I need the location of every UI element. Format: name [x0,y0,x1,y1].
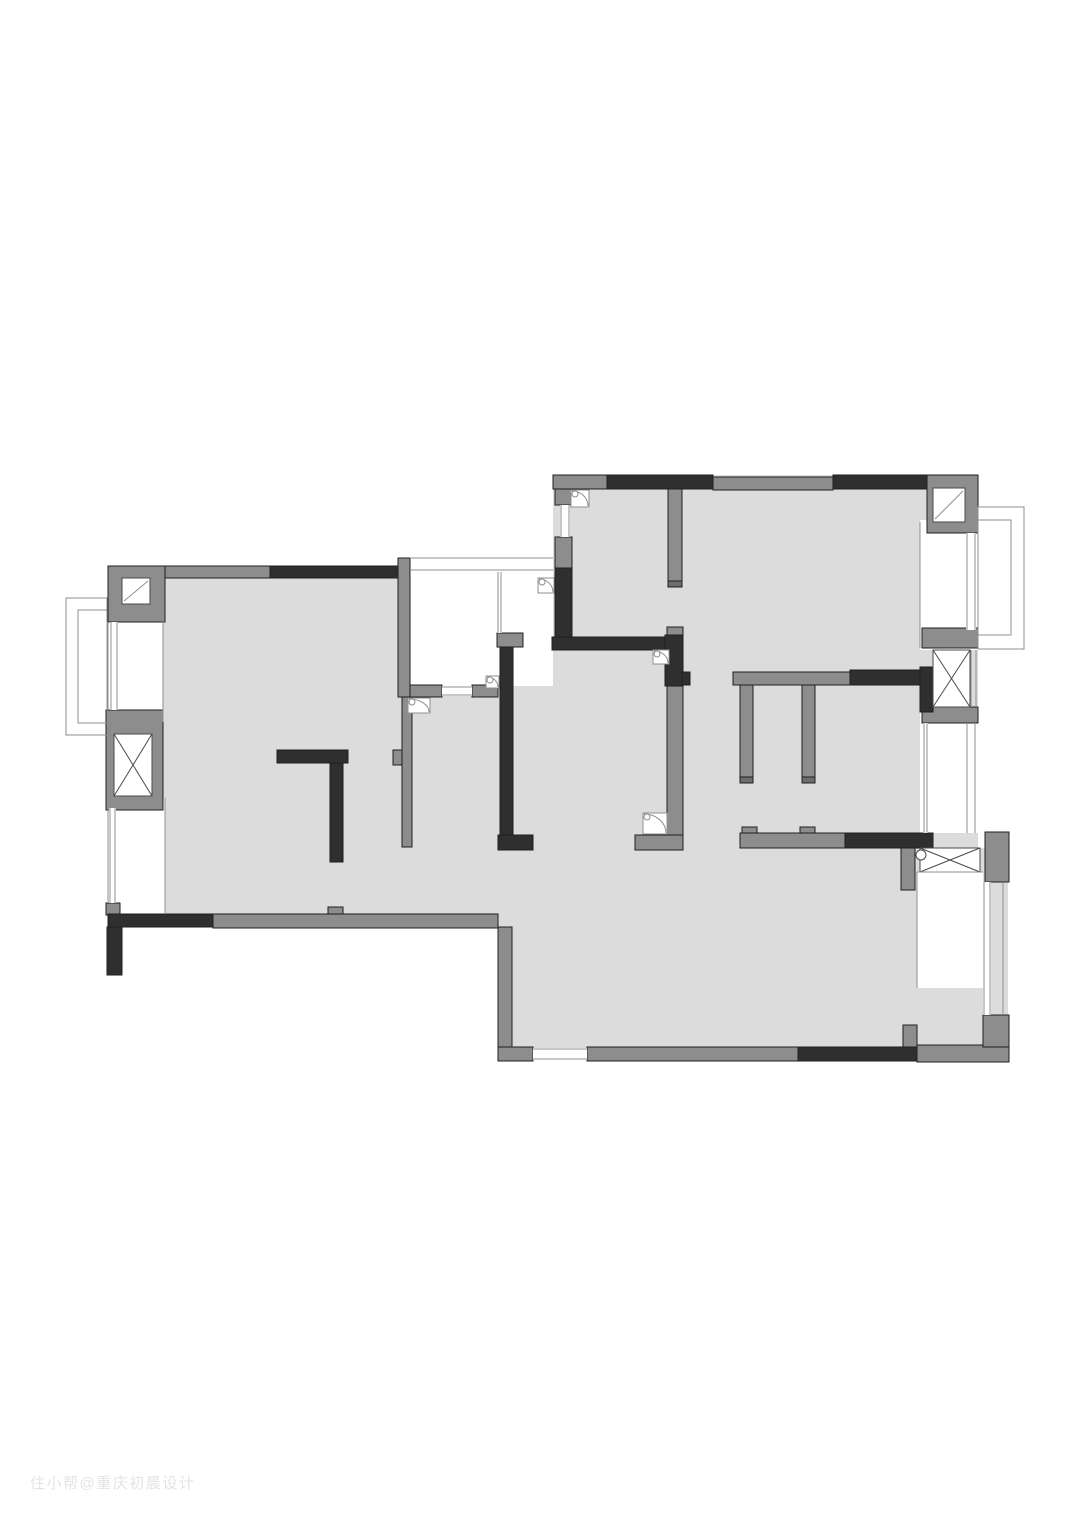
wall-segment-gray [922,628,978,648]
wall-segment-dark [498,835,533,850]
wall-segment-gray [635,835,683,850]
wall-segment-dark [833,475,927,489]
wall-segment-gray [903,1025,917,1047]
watermark: 住小帮@重庆初晨设计 [30,1472,195,1493]
wall-segment-dark [682,672,690,685]
window [533,1048,587,1060]
wall-segment-gray [667,627,683,635]
wall-segment-dark [108,914,213,927]
wall-segment-gray [398,558,410,697]
wall-segment-gray [410,685,442,697]
wall-segment-gray [802,685,815,783]
wall-segment-dark [107,927,122,975]
exterior-pocket [917,872,983,988]
wall-segment-dark [277,750,348,763]
wall-segment-dark [500,647,513,840]
wall-segment-gray [555,489,572,505]
wall-segment-gray [213,914,498,928]
door-hinge-icon [409,699,415,705]
wall-segment-gray [733,672,850,685]
wall-segment-gray [917,1045,1009,1062]
door-hinge-icon [572,491,578,497]
wall-segment-dark [850,670,922,685]
balcony-outline [978,507,1024,649]
wall-segment-gray [587,1047,798,1061]
door-hinge-icon [654,651,660,657]
wall-segment-dark [270,566,398,578]
wall-segment-gray [740,685,753,783]
wall-segment-dark [330,763,343,862]
wall-segment-gray [497,633,523,647]
door-hinge-icon [539,579,545,585]
wall-segment-gray [742,827,757,833]
wall-segment-gray [106,903,120,915]
wall-segment-gray [498,927,512,1060]
wall-segment-gray [498,1047,533,1061]
wall-segment-dark [555,568,572,638]
wall-segment-gray [713,477,833,490]
floor-plan-page: 住小帮@重庆初晨设计 [0,0,1080,1527]
exterior-pocket [108,798,165,916]
wall-segment-gray [983,1015,1009,1047]
wall-segment-gray [800,827,815,833]
wall-segment-dark [552,637,683,650]
door-hinge-icon [644,814,650,820]
balcony-outline-inner [978,520,1011,635]
balcony-outline-inner [78,610,107,723]
wall-segment-gray [740,833,845,848]
wall-segment-gray [393,750,402,765]
wall-segment-gray [328,907,343,914]
wall-segment-gray [901,847,915,890]
wall-segment-dark [607,475,713,489]
exterior-pocket [410,556,553,686]
wall-segment-gray [667,686,683,835]
wall-end-cap [668,581,682,587]
wall-segment-gray [985,832,1009,882]
floor-area [163,578,402,914]
wall-segment-dark [798,1047,917,1061]
balcony-outline [66,598,107,735]
floor-area [553,475,978,848]
exterior-pocket [920,710,980,833]
door-hinge-icon [487,677,493,683]
wall-segment-gray [555,537,572,568]
wall-segment-dark [920,667,933,712]
wall-end-cap [802,777,815,783]
wall-segment-gray [668,487,682,587]
wall-segment-dark [845,833,933,848]
floor-plan-canvas [0,0,1080,1527]
wall-segment-gray [553,475,610,489]
wall-segment-gray [402,697,412,847]
fixture-circle-icon [916,850,926,860]
wall-end-cap [740,777,753,783]
